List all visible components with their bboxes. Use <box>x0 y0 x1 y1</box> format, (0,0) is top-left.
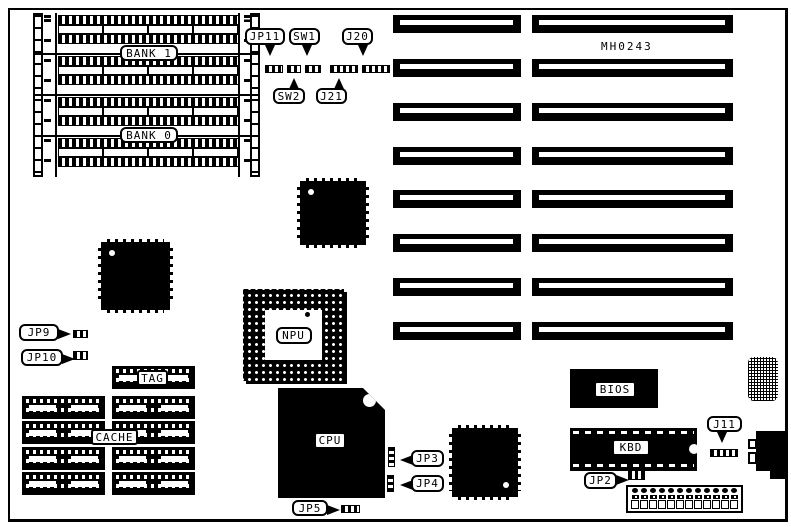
board-part-number: MH0243 <box>601 40 653 53</box>
jp5-jumper-block <box>341 505 360 513</box>
bios-label: BIOS <box>594 381 636 398</box>
j21-callout: J21 <box>316 88 347 104</box>
cache-chip <box>22 447 105 470</box>
simm-socket-body <box>58 148 240 157</box>
sw2-callout-tail <box>289 78 299 89</box>
jp5-callout-text: JP5 <box>299 503 322 514</box>
slot-stripe <box>400 195 513 200</box>
power-pin-contact <box>659 495 666 499</box>
cache-chip <box>22 472 105 495</box>
isa-slot <box>393 234 521 252</box>
jp10-callout-tail <box>62 354 75 364</box>
isa-slot <box>532 59 733 77</box>
slot-stripe <box>400 64 513 69</box>
part-number-text: MH0243 <box>601 40 653 53</box>
isa-slot <box>393 15 521 33</box>
cache-chip <box>112 447 195 470</box>
jp2-jumper-block <box>628 470 645 480</box>
qfp-chip-top <box>300 181 366 245</box>
jp2-callout: JP2 <box>584 472 617 489</box>
power-pin-cell <box>694 488 702 509</box>
chip-pins <box>107 239 164 242</box>
jp10-callout: JP10 <box>21 349 63 366</box>
power-pin-contact <box>704 495 711 499</box>
cpu-label: CPU <box>314 432 346 449</box>
isa-slot <box>532 322 733 340</box>
power-pin-contact <box>695 495 702 499</box>
power-pin-contact <box>686 495 693 499</box>
power-pin-dot <box>686 488 692 493</box>
isa-slot <box>393 278 521 296</box>
keyboard-edge-connector <box>756 431 788 471</box>
jp10-callout-text: JP10 <box>27 352 58 363</box>
jp4-callout: JP4 <box>411 475 444 492</box>
slot-stripe <box>400 283 513 288</box>
bios-label-text: BIOS <box>600 384 631 395</box>
simm-socket-body <box>58 25 240 34</box>
sw1-callout-tail <box>302 45 312 56</box>
power-pin-contact <box>632 495 639 499</box>
connector-tab <box>748 439 757 449</box>
j20-header-block <box>362 65 390 73</box>
chip-pins <box>449 434 452 491</box>
power-pin-cell <box>631 488 639 509</box>
connector-tab <box>748 452 757 464</box>
sw1-callout: SW1 <box>289 28 320 45</box>
slot-stripe <box>539 64 725 69</box>
jp9-callout-text: JP9 <box>28 327 51 338</box>
power-pin-contact <box>713 495 720 499</box>
jp11-jumper-block <box>265 65 283 73</box>
jp9-callout: JP9 <box>19 324 59 341</box>
jp2-callout-tail <box>616 475 629 485</box>
npu-label-text: NPU <box>282 330 305 341</box>
chip-pins <box>366 187 369 239</box>
isa-slot <box>532 278 733 296</box>
slot-stripe <box>400 327 513 332</box>
slot-stripe <box>400 20 513 25</box>
jp5-callout-tail <box>327 505 340 515</box>
simm-socket-body <box>58 66 240 75</box>
power-pin-dot <box>677 488 683 493</box>
qfp-chip-left <box>101 242 170 310</box>
bank1-label-text: BANK 1 <box>126 48 172 59</box>
jp4-callout-text: JP4 <box>416 478 439 489</box>
jp11-callout: JP11 <box>245 28 285 45</box>
bank0-label-text: BANK 0 <box>126 130 172 141</box>
jp5-callout: JP5 <box>292 500 328 516</box>
power-pin-hole <box>640 500 648 509</box>
isa-slot <box>532 147 733 165</box>
sw2-callout-text: SW2 <box>278 91 301 102</box>
power-pin-contact <box>731 495 738 499</box>
jp11-callout-text: JP11 <box>250 31 281 42</box>
isa-slot <box>393 190 521 208</box>
jp3-callout-tail <box>400 455 413 465</box>
cache-label-text: CACHE <box>95 432 133 443</box>
power-pin-contact <box>641 495 648 499</box>
power-pin-cell <box>703 488 711 509</box>
simm-pin-row <box>58 34 240 44</box>
slot-stripe <box>539 20 725 25</box>
power-pin-contact <box>668 495 675 499</box>
power-pin-dot <box>731 488 737 493</box>
chip-pins <box>458 497 512 500</box>
jp9-callout-tail <box>58 329 71 339</box>
chip-pins <box>170 248 173 304</box>
j20-callout-text: J20 <box>346 31 369 42</box>
npu-socket-center: NPU <box>265 310 322 360</box>
isa-slot <box>393 59 521 77</box>
power-pin-hole <box>721 500 729 509</box>
power-pin-dot <box>704 488 710 493</box>
connector-step <box>770 471 788 479</box>
kbd-label-text: KBD <box>620 442 643 453</box>
power-pin-hole <box>649 500 657 509</box>
isa-slot <box>393 147 521 165</box>
j11-callout-tail <box>717 432 727 443</box>
isa-slot <box>532 103 733 121</box>
slot-stripe <box>539 108 725 113</box>
chip-pins <box>573 431 694 434</box>
simm-pin-row <box>58 116 240 126</box>
chip-notch <box>689 444 699 454</box>
j20-callout-tail <box>358 45 368 56</box>
chip-pins <box>573 464 694 467</box>
qfp-chip-bottom <box>452 428 518 497</box>
chip-pins <box>107 310 164 313</box>
power-pin-dot <box>641 488 647 493</box>
sw1-callout-text: SW1 <box>293 31 316 42</box>
simm-pin-row <box>58 157 240 167</box>
j11-callout-text: J11 <box>713 419 736 430</box>
bank1-label: BANK 1 <box>120 45 178 61</box>
power-pin-cell <box>658 488 666 509</box>
cache-chip <box>112 396 195 419</box>
power-pin-hole <box>703 500 711 509</box>
power-connector <box>626 485 743 513</box>
slot-stripe <box>400 108 513 113</box>
chip-pins <box>306 178 360 181</box>
simm-socket-body <box>58 107 240 116</box>
sw2-callout: SW2 <box>273 88 305 104</box>
power-pin-dot <box>695 488 701 493</box>
motherboard-diagram: BANK 1 BANK 0 JP11 SW1 J20 SW2 J21 MH024… <box>0 0 791 527</box>
power-pin-hole <box>667 500 675 509</box>
slot-stripe <box>400 152 513 157</box>
npu-label: NPU <box>276 327 312 344</box>
isa-slot <box>532 190 733 208</box>
power-pin-hole <box>694 500 702 509</box>
jp10-jumper-block <box>73 351 88 360</box>
kbd-label: KBD <box>612 439 650 456</box>
jp9-jumper-block <box>73 330 88 338</box>
slot-stripe <box>400 239 513 244</box>
power-pin-dot <box>650 488 656 493</box>
slot-stripe <box>539 195 725 200</box>
chip-pins <box>518 434 521 491</box>
npu-socket: NPU <box>243 289 344 381</box>
power-pin-dot <box>713 488 719 493</box>
chip-pins <box>297 187 300 239</box>
power-pin-cell <box>640 488 648 509</box>
power-pin-cell <box>649 488 657 509</box>
slot-stripe <box>539 327 725 332</box>
j11-header-block <box>710 449 738 457</box>
sw2-switch-block <box>287 65 301 73</box>
power-pin-cell <box>712 488 720 509</box>
power-pin-cell <box>730 488 738 509</box>
jp4-jumper-block <box>387 475 394 492</box>
power-pin-dot <box>659 488 665 493</box>
tag-label-text: TAG <box>141 373 164 384</box>
power-pin-hole <box>712 500 720 509</box>
power-pin-cell <box>676 488 684 509</box>
power-pin-cell <box>721 488 729 509</box>
slot-stripe <box>539 283 725 288</box>
bank-divider-line <box>33 94 258 96</box>
power-pin-dot <box>668 488 674 493</box>
j21-callout-tail <box>334 78 344 89</box>
isa-slot <box>393 103 521 121</box>
power-pin-hole <box>631 500 639 509</box>
j20-callout: J20 <box>342 28 373 45</box>
jp4-callout-tail <box>400 480 413 490</box>
chip-pins <box>458 425 512 428</box>
npu-pin1-dot <box>305 312 310 317</box>
power-pin-hole <box>730 500 738 509</box>
power-pin-contact <box>650 495 657 499</box>
chip-orientation-dot <box>109 250 115 256</box>
power-pin-cell <box>667 488 675 509</box>
power-pin-hole <box>658 500 666 509</box>
isa-slot <box>532 234 733 252</box>
isa-slot <box>532 15 733 33</box>
tag-label: TAG <box>137 370 168 386</box>
cpu-label-text: CPU <box>319 435 342 446</box>
slot-stripe <box>539 239 725 244</box>
chip-orientation-dot <box>308 189 314 195</box>
jp11-callout-tail <box>265 45 275 56</box>
chip-orientation-dot <box>503 482 509 488</box>
jp2-callout-text: JP2 <box>589 475 612 486</box>
keyboard-din-connector <box>748 357 778 401</box>
cache-label: CACHE <box>91 429 138 445</box>
jp3-jumper-block <box>388 447 395 467</box>
simm-pin-row <box>58 15 240 25</box>
power-pin-contact <box>677 495 684 499</box>
j21-header-block <box>330 65 358 73</box>
power-pin-hole <box>685 500 693 509</box>
jp3-callout-text: JP3 <box>416 453 439 464</box>
cache-chip <box>22 396 105 419</box>
power-pin-dot <box>632 488 638 493</box>
chip-pins <box>306 245 360 248</box>
simm-pin-row <box>58 75 240 85</box>
simm-pin-row <box>58 97 240 107</box>
power-pin-contact <box>722 495 729 499</box>
chip-pins <box>98 248 101 304</box>
cache-chip <box>112 472 195 495</box>
slot-stripe <box>539 152 725 157</box>
j11-callout: J11 <box>707 416 742 432</box>
power-pin-cell <box>685 488 693 509</box>
isa-slot <box>393 322 521 340</box>
jp3-callout: JP3 <box>411 450 444 467</box>
j21-callout-text: J21 <box>320 91 343 102</box>
power-pin-hole <box>676 500 684 509</box>
power-pin-dot <box>722 488 728 493</box>
sw1-switch-block <box>305 65 321 73</box>
bank0-label: BANK 0 <box>120 127 178 143</box>
